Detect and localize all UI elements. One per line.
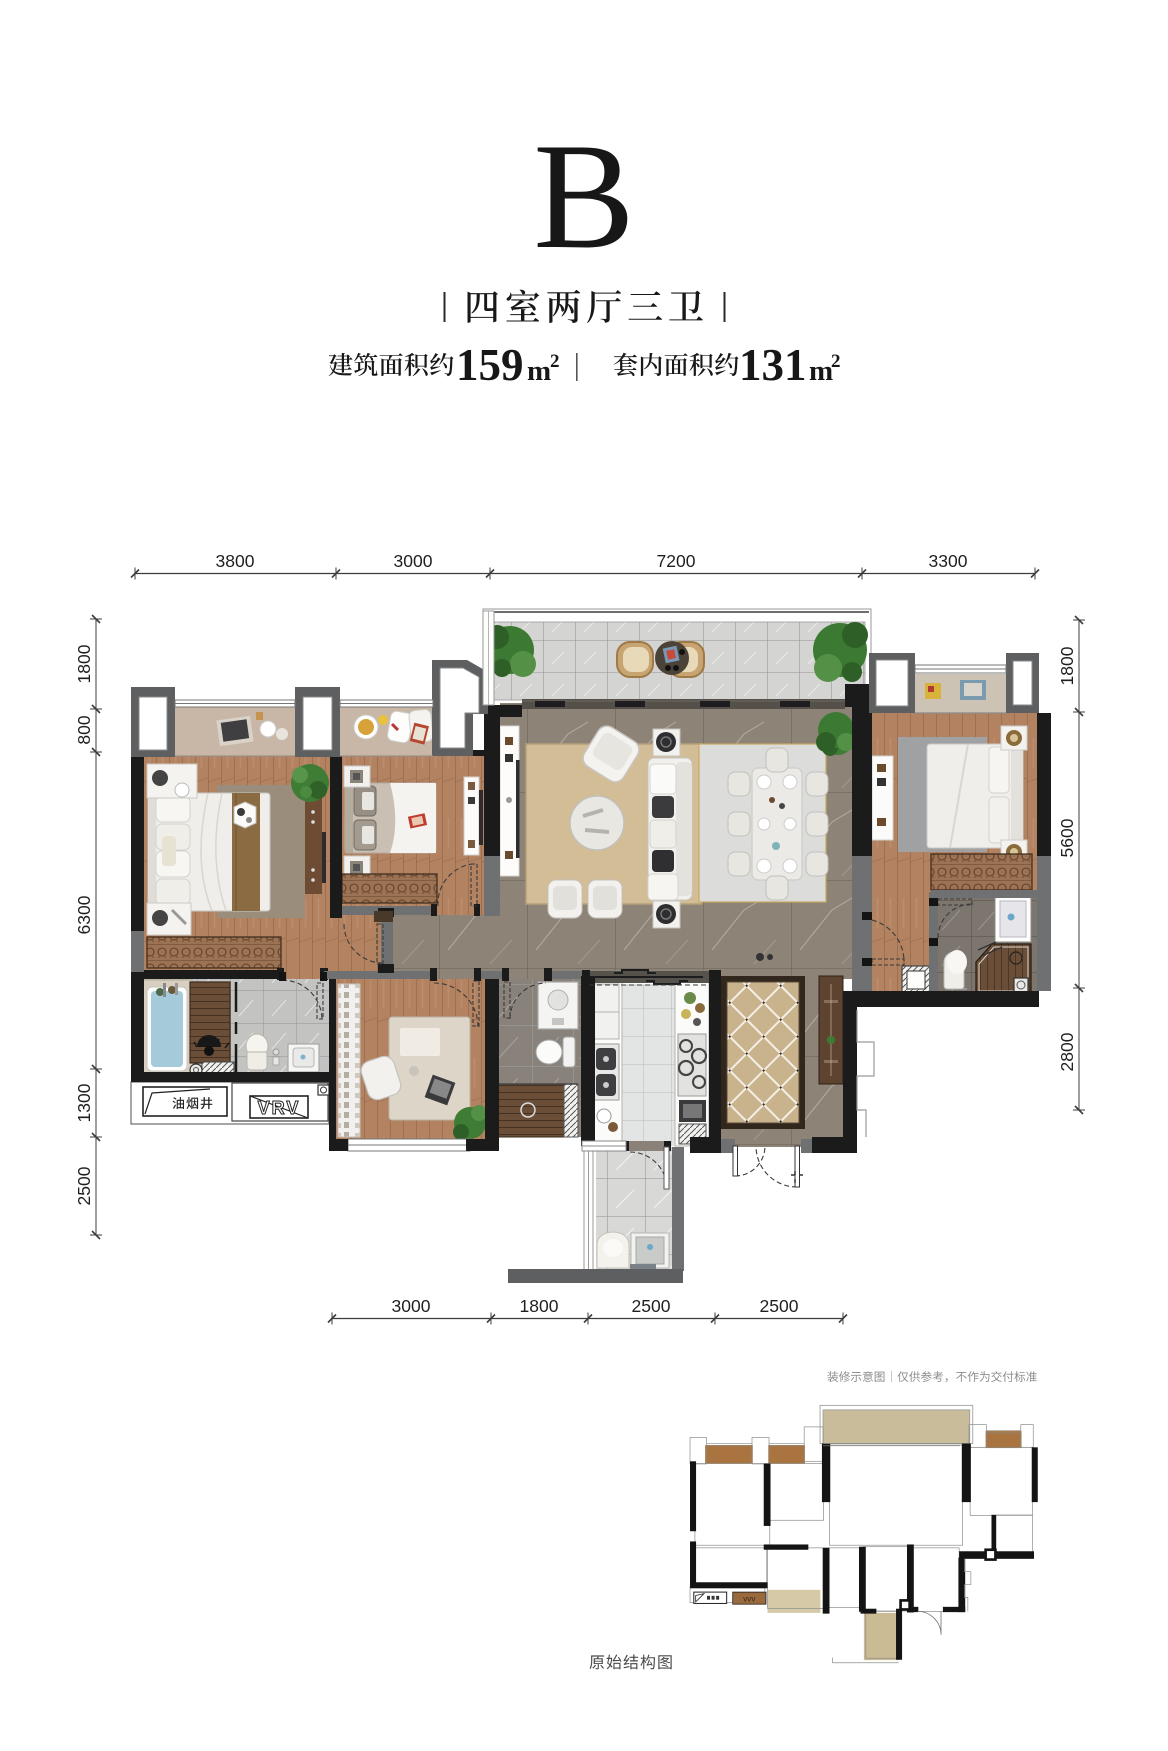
svg-text:vvv: vvv [743,1594,756,1604]
svg-text:3300: 3300 [929,551,968,571]
svg-text:m: m [527,355,551,387]
svg-text:1800: 1800 [1057,646,1077,685]
svg-text:2: 2 [831,351,841,372]
svg-text:B: B [533,112,634,280]
svg-text:2500: 2500 [632,1296,671,1316]
svg-text:2500: 2500 [74,1166,94,1205]
svg-text:800: 800 [74,715,94,744]
svg-text:6300: 6300 [74,895,94,934]
svg-text:3000: 3000 [392,1296,431,1316]
svg-text:VRV: VRV [258,1098,301,1118]
svg-text:1800: 1800 [520,1296,559,1316]
svg-text:3800: 3800 [216,551,255,571]
svg-text:1300: 1300 [74,1083,94,1122]
svg-text:2800: 2800 [1057,1032,1077,1071]
svg-text:2500: 2500 [760,1296,799,1316]
svg-text:131: 131 [739,340,807,390]
svg-text:3000: 3000 [394,551,433,571]
svg-text:5600: 5600 [1057,818,1077,857]
svg-text:159: 159 [456,340,524,390]
svg-text:1800: 1800 [74,644,94,683]
svg-text:2: 2 [550,351,560,372]
svg-text:m: m [809,355,833,387]
svg-text:7200: 7200 [657,551,696,571]
